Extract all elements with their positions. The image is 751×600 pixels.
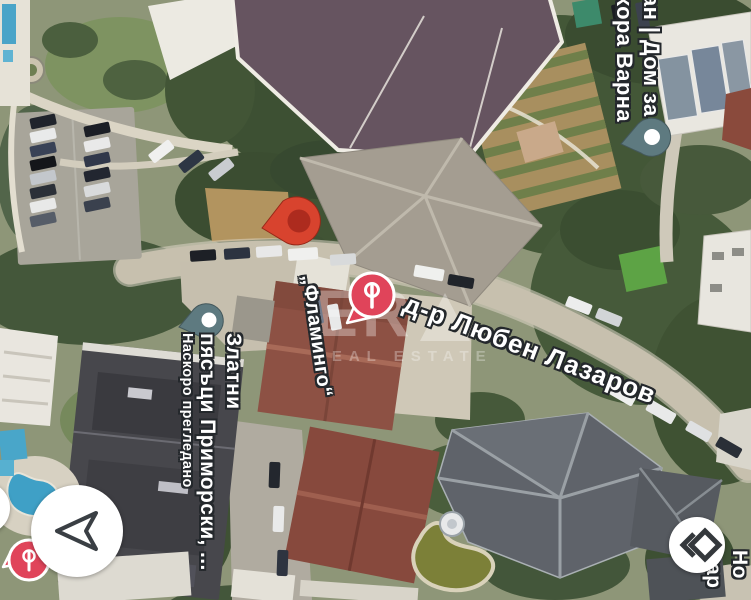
double-chevron-icon: [669, 517, 725, 573]
partial-line1: Но: [726, 550, 751, 588]
home-for-people-line1: ан | Дом за: [637, 0, 664, 122]
home-for-people-line2: хора Варна: [610, 0, 637, 122]
map-canvas[interactable]: ER REAL ESTATE: [0, 0, 751, 600]
golden-sands-line2: пясъци Приморски, ...: [195, 333, 221, 571]
golden-sands-label[interactable]: Златни пясъци Приморски, ... Наскоро пре…: [177, 333, 246, 571]
expand-button[interactable]: [669, 517, 725, 573]
golden-sands-status: Наскоро прегледано: [177, 333, 195, 571]
back-button[interactable]: [31, 485, 123, 577]
home-for-people-label[interactable]: ан | Дом за хора Варна: [610, 0, 664, 122]
navigation-arrow-icon: [31, 485, 123, 577]
golden-sands-line1: Златни: [220, 333, 246, 571]
